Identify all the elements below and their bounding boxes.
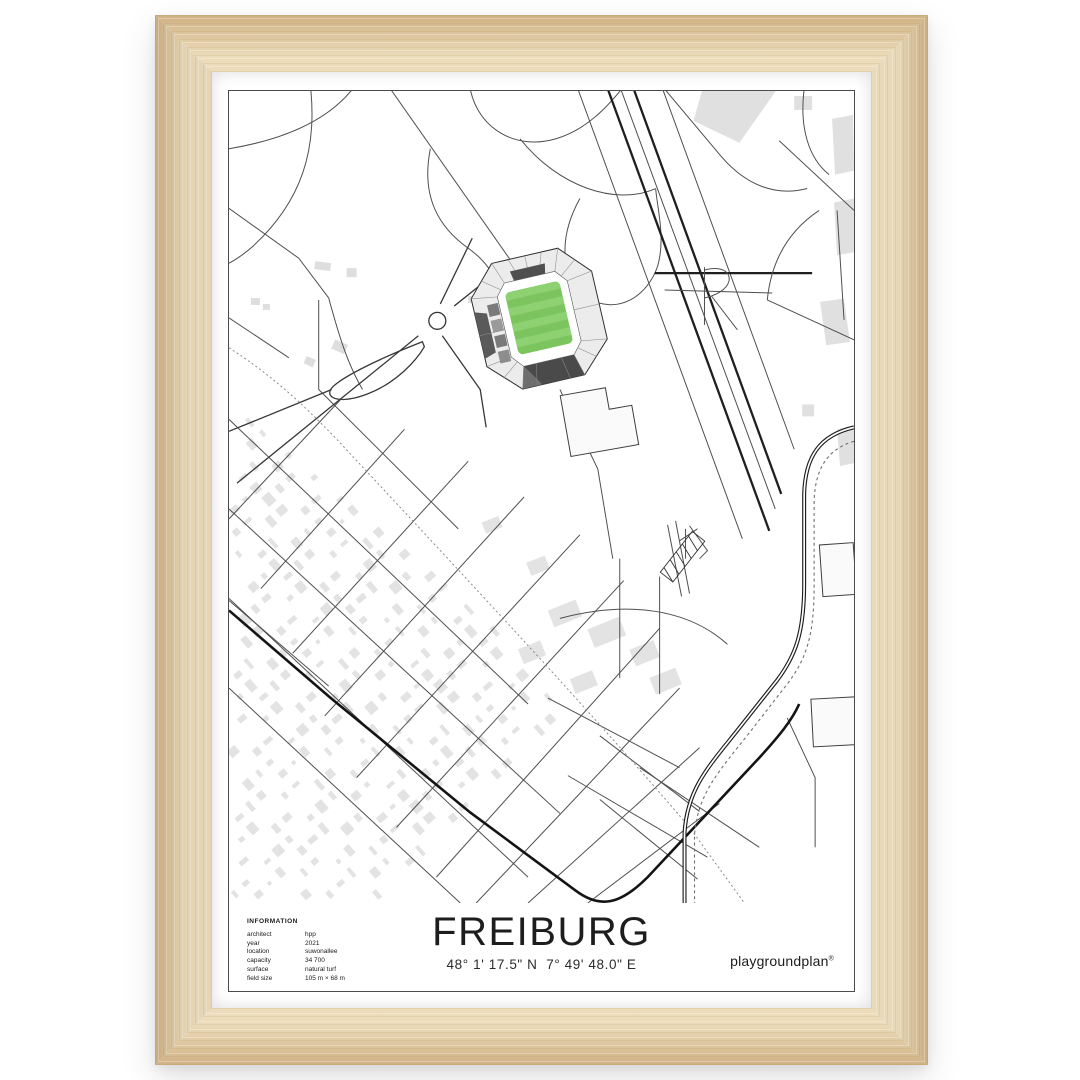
event-hall-building bbox=[560, 384, 638, 457]
poster-content-border: INFORMATION architecthppyear2021location… bbox=[228, 90, 855, 992]
airfield-runways bbox=[578, 91, 812, 559]
info-label: field size bbox=[247, 975, 305, 984]
brand-logo: playgroundplan® bbox=[730, 953, 834, 969]
sports-hall-building bbox=[819, 543, 854, 597]
poster: INFORMATION architecthppyear2021location… bbox=[212, 72, 871, 1008]
poster-title: FREIBURG bbox=[229, 912, 854, 952]
info-value: 105 m × 68 m bbox=[305, 975, 345, 984]
airport-apron-shapes bbox=[694, 91, 854, 466]
depot-building bbox=[811, 697, 854, 747]
commercial-buildings bbox=[482, 516, 682, 695]
product-photo: INFORMATION architecthppyear2021location… bbox=[0, 0, 1080, 1080]
registered-mark: ® bbox=[829, 955, 834, 962]
wooden-frame: INFORMATION architecthppyear2021location… bbox=[155, 15, 928, 1065]
info-row: field size105 m × 68 m bbox=[247, 975, 397, 984]
main-road bbox=[229, 600, 799, 901]
highway bbox=[685, 427, 854, 903]
stadium-avenue bbox=[229, 238, 494, 483]
brand-name: playgroundplan bbox=[730, 953, 829, 969]
stadium-map-graphic bbox=[229, 91, 854, 903]
railway-dotted bbox=[229, 348, 744, 903]
poster-footer: INFORMATION architecthppyear2021location… bbox=[229, 903, 854, 991]
southeast-streets bbox=[548, 521, 854, 879]
roundabout bbox=[429, 312, 446, 329]
railway-dashed bbox=[695, 441, 854, 903]
park-buildings bbox=[251, 261, 487, 367]
